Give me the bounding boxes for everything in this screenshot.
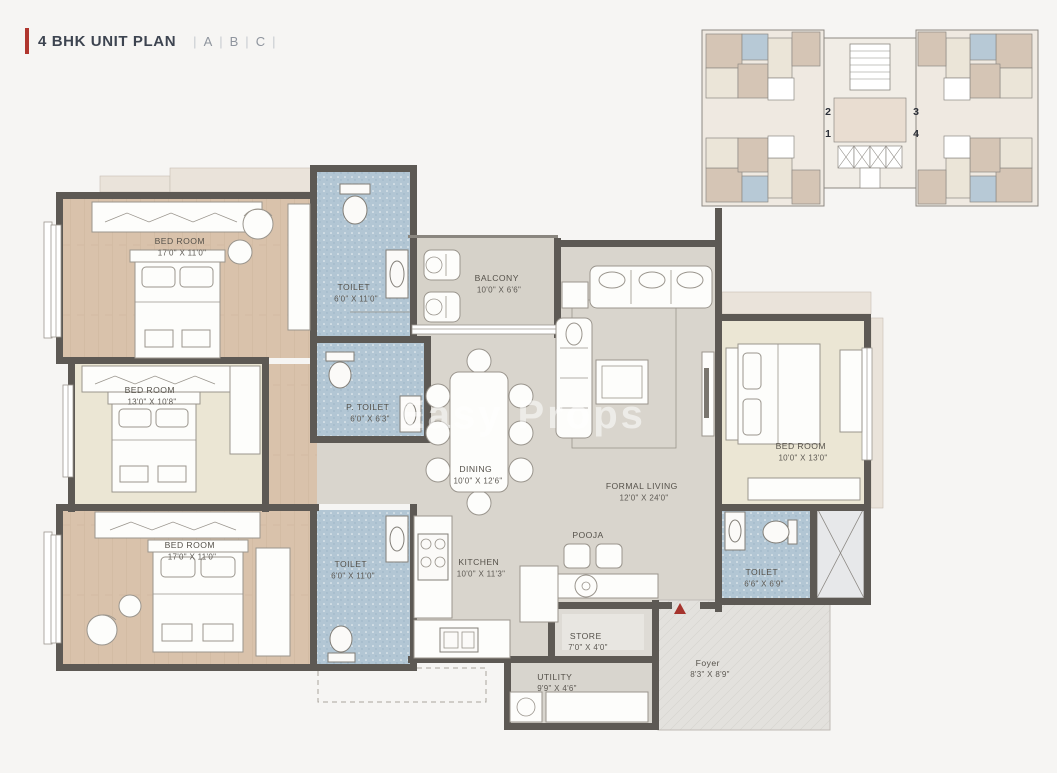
dresser-icon	[256, 548, 290, 656]
unit-variant-c: C	[256, 34, 265, 49]
sink-icon	[414, 620, 510, 658]
washbasin-icon	[725, 512, 745, 550]
key-plan: 2 1 3 4	[702, 30, 1038, 206]
key-plan-unit-2: 2	[825, 106, 831, 118]
chajja-band	[722, 292, 871, 314]
bed-icon	[726, 344, 820, 444]
wardrobe-icon	[95, 512, 260, 538]
chajja-band	[871, 318, 883, 508]
title-accent-bar	[25, 28, 29, 54]
wardrobe-icon	[288, 204, 310, 330]
unit-variant-b: B	[230, 34, 239, 49]
sofa-icon	[590, 266, 712, 308]
page-title: 4 BHK UNIT PLAN	[38, 33, 176, 50]
wardrobe-icon	[840, 350, 862, 432]
entry-area	[658, 512, 718, 612]
fridge-icon	[520, 566, 558, 622]
lounge-chair-icon	[424, 250, 460, 280]
washbasin-icon	[386, 516, 408, 562]
bed-icon	[108, 392, 200, 492]
watermark: Easy Props	[398, 393, 646, 437]
lift-shaft-icon	[838, 146, 902, 168]
stove-icon	[418, 534, 448, 580]
key-plan-court	[834, 98, 906, 142]
title-block: 4 BHK UNIT PLAN | A | B | C |	[25, 28, 282, 54]
washing-machine-icon	[510, 692, 542, 722]
key-plan-unit-1: 1	[825, 128, 831, 140]
separator: |	[219, 34, 222, 49]
chajja-band	[100, 176, 170, 192]
main-floor-plan: BED ROOM 17'0" X 11'0" TOILET 6'0" X 11'…	[44, 165, 883, 730]
wc-icon	[763, 520, 797, 544]
shaft-icon	[817, 508, 864, 598]
hall	[317, 442, 424, 504]
unit-variant-labels: | A | B | C |	[186, 34, 282, 49]
washbasin-icon	[386, 250, 408, 298]
bed-icon	[130, 250, 225, 358]
unit-variant-a: A	[204, 34, 213, 49]
key-plan-unit-4: 4	[913, 128, 919, 140]
lounge-chair-icon	[424, 292, 460, 322]
label-pooja: POOJA	[572, 530, 603, 540]
service-dashed-outline	[318, 668, 486, 702]
chajja-band	[170, 168, 312, 192]
stairs-icon	[850, 44, 890, 90]
separator: |	[272, 34, 275, 49]
floor-plan-canvas: BED ROOM 17'0" X 11'0" TOILET 6'0" X 11'…	[0, 0, 1057, 768]
separator: |	[245, 34, 248, 49]
kitchen-counter-icon	[414, 516, 452, 618]
dresser-icon	[748, 478, 860, 500]
key-plan-lobby	[860, 168, 880, 188]
side-table-icon	[562, 282, 588, 308]
wardrobe-icon	[92, 202, 262, 232]
separator: |	[193, 34, 196, 49]
key-plan-unit-3: 3	[913, 106, 919, 118]
tv-unit-icon	[702, 352, 714, 436]
wardrobe-icon	[230, 366, 260, 454]
passage	[269, 364, 317, 504]
room-foyer	[658, 600, 830, 730]
utility-counter-icon	[546, 692, 648, 722]
